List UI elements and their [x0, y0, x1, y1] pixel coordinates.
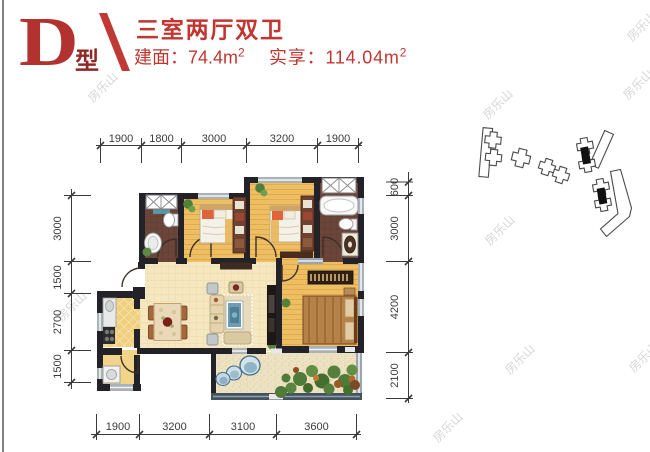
svg-text:3600: 3600 — [304, 421, 328, 433]
svg-text:型: 型 — [75, 48, 99, 75]
svg-text:3200: 3200 — [162, 421, 186, 433]
svg-text:1800: 1800 — [149, 133, 173, 145]
svg-text:3100: 3100 — [231, 421, 255, 433]
svg-text:2100: 2100 — [389, 363, 401, 387]
svg-text:4200: 4200 — [389, 295, 401, 319]
svg-text:D: D — [19, 3, 79, 81]
svg-text:1900: 1900 — [106, 421, 130, 433]
svg-text:1500: 1500 — [52, 354, 64, 378]
svg-text:3000: 3000 — [389, 216, 401, 240]
svg-text:三室两厅双卫: 三室两厅双卫 — [136, 17, 285, 43]
svg-text:2700: 2700 — [52, 310, 64, 334]
svg-text:3200: 3200 — [270, 133, 294, 145]
svg-text:600: 600 — [389, 178, 401, 196]
svg-text:实享：114.04m2: 实享：114.04m2 — [269, 46, 407, 68]
svg-text:3000: 3000 — [202, 133, 226, 145]
svg-text:3000: 3000 — [52, 216, 64, 240]
svg-text:1900: 1900 — [109, 133, 133, 145]
svg-text:建面：74.4m2: 建面：74.4m2 — [134, 46, 245, 68]
svg-text:1900: 1900 — [326, 133, 350, 145]
svg-text:1500: 1500 — [52, 265, 64, 289]
